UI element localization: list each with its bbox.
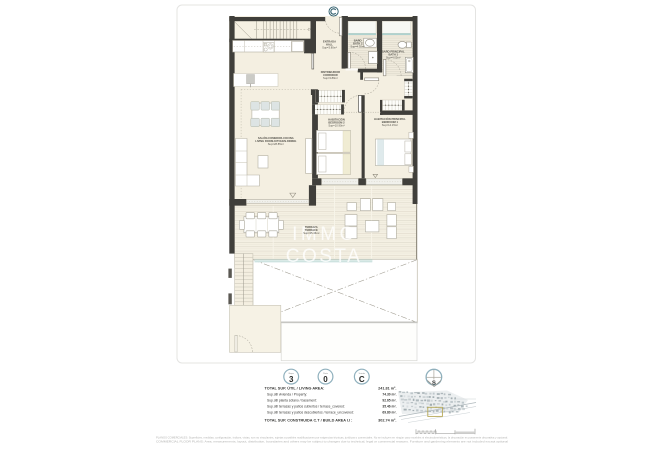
- svg-text:COSTA: COSTA: [286, 246, 363, 267]
- svg-text:IMMO: IMMO: [292, 224, 358, 245]
- svg-text:Sup=4.05m²: Sup=4.05m²: [386, 56, 401, 60]
- svg-text:COMMERCIAL FLOOR PLANS: Area,: COMMERCIAL FLOOR PLANS: Area, measuremen…: [156, 440, 509, 443]
- svg-text:Sup=3.80m²: Sup=3.80m²: [322, 45, 337, 49]
- svg-text:Sup=28.85m²: Sup=28.85m²: [268, 142, 284, 146]
- svg-text:74.30 m².: 74.30 m².: [382, 392, 396, 396]
- svg-text:Sup=3.89m²: Sup=3.89m²: [323, 76, 338, 80]
- svg-text:TOTAL SUP. CONSTRUIDA C.T / BU: TOTAL SUP. CONSTRUIDA C.T / BUILD AREA I…: [265, 419, 353, 423]
- svg-text:Sup=14.15m²: Sup=14.15m²: [382, 123, 398, 127]
- svg-text:35.46 m².: 35.46 m².: [382, 405, 396, 409]
- svg-text:0: 0: [323, 375, 328, 384]
- svg-text:92.65 m².: 92.65 m².: [382, 398, 396, 402]
- svg-text:Sup.útil terrazas y patios cub: Sup.útil terrazas y patios cubiertos / t…: [267, 405, 345, 409]
- svg-text:Sup=35.46m²: Sup=35.46m²: [303, 231, 319, 235]
- svg-text:Sup.útil vivienda / Property:: Sup.útil vivienda / Property:: [267, 392, 307, 396]
- svg-text:Sup=4.35m²: Sup=4.35m²: [350, 45, 365, 49]
- svg-text:Sup=10.90m²: Sup=10.90m²: [328, 124, 344, 128]
- svg-text:302.74 m².: 302.74 m².: [378, 419, 396, 423]
- svg-text:PLANOS COMERCIALES: Superficie: PLANOS COMERCIALES: Superficies, medidas…: [156, 437, 508, 440]
- svg-text:TOTAL SUP. ÚTIL / LIVING AREA:: TOTAL SUP. ÚTIL / LIVING AREA:: [265, 385, 325, 390]
- svg-text:Sup.útil terrazas y patios des: Sup.útil terrazas y patios descubiertos …: [267, 411, 354, 415]
- svg-text:Sup.útil planta sótano / basem: Sup.útil planta sótano / basement:: [267, 398, 317, 402]
- svg-text:3: 3: [289, 375, 294, 384]
- svg-text:S: S: [432, 381, 436, 387]
- svg-text:241.81 m².: 241.81 m².: [378, 386, 396, 390]
- svg-text:69.80 m².: 69.80 m².: [382, 411, 396, 415]
- svg-text:C: C: [359, 375, 365, 384]
